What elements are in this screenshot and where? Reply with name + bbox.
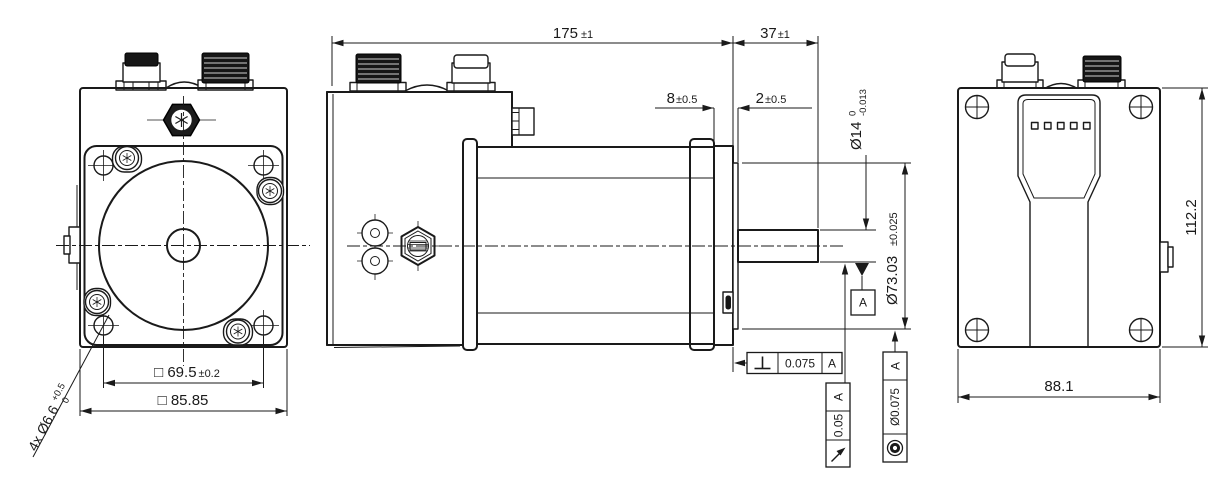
dim-flange-thickness: 8±0.5 [655, 90, 714, 146]
dim-flange-square-label: □ 85.85 [158, 392, 209, 409]
drawing-page: □ 69.5±0.2 □ 85.85 4x Ø6.6 +0.5 0 [0, 0, 1222, 480]
side-gasket-dome [405, 85, 449, 91]
vent-plug-icon [147, 104, 216, 135]
dim-bolt-square-label: □ 69.5±0.2 [154, 364, 220, 381]
svg-text:Ø73.03: Ø73.03 [884, 256, 901, 305]
rear-side-connector-tab [1160, 242, 1173, 272]
dim-shaft-length: 37±1 [733, 25, 818, 228]
gdt-perpendicularity-frame: 0.075 A [733, 347, 842, 374]
datum-triangle-icon [855, 263, 869, 276]
svg-text:0: 0 [848, 111, 859, 116]
dim-mounting-holes-label: 4x Ø6.6 +0.5 0 [24, 381, 77, 455]
side-ground-clip [723, 292, 733, 313]
side-connector-left-icon [350, 54, 406, 91]
dimension-drawing: □ 69.5±0.2 □ 85.85 4x Ø6.6 +0.5 0 [0, 0, 1222, 480]
gdt-conc-value: Ø0.075 [890, 388, 902, 426]
datum-label: A [859, 296, 867, 310]
rear-view: 112.2 88.1 [958, 54, 1208, 403]
datum-a-flag: A [851, 263, 875, 315]
dim-shaft-diameter: Ø14 0 -0.013 [820, 89, 876, 262]
side-housing-outline [327, 92, 512, 348]
dim-shaft-length-label: 37±1 [760, 25, 790, 42]
gdt-runout-value: 0.05 [832, 413, 846, 437]
dim-body-height-label: 112.2 [1183, 199, 1200, 235]
gdt-conc-datum: A [889, 362, 903, 370]
dim-body-height: 112.2 [1162, 88, 1208, 347]
rear-connector-right-icon [1078, 56, 1125, 89]
dim-body-width: 88.1 [958, 349, 1160, 403]
front-view: □ 69.5±0.2 □ 85.85 4x Ø6.6 +0.5 0 [24, 53, 310, 457]
dim-flange-thickness-label: 8±0.5 [667, 90, 698, 107]
dim-overall-length-label: 175±1 [553, 25, 593, 42]
rear-connector-left-icon [997, 54, 1043, 89]
svg-text:4x Ø6.6: 4x Ø6.6 [25, 402, 62, 453]
gdt-runout-datum: A [832, 393, 846, 401]
side-motor-body [463, 139, 714, 350]
rotary-switches-icon [357, 214, 393, 280]
dim-pilot-height-label: 2±0.5 [756, 90, 787, 107]
front-connector-left-icon [116, 53, 166, 90]
side-view: 175±1 37±1 8±0.5 2±0.5 [327, 25, 911, 467]
gdt-perp-datum: A [828, 357, 836, 371]
dim-pilot-height: 2±0.5 [738, 90, 812, 162]
side-connector-right-icon [447, 55, 495, 91]
svg-text:-0.013: -0.013 [858, 89, 869, 116]
side-flange-plate [714, 146, 733, 345]
front-side-connector-tab [64, 227, 80, 263]
rear-body-outline [958, 88, 1160, 347]
gdt-perp-value: 0.075 [785, 357, 815, 371]
gdt-concentricity-frame: A Ø0.075 [883, 331, 907, 463]
side-housing-port [512, 108, 534, 135]
dim-pilot-diameter-label: Ø73.03 ±0.025 [884, 212, 901, 305]
svg-text:±0.025: ±0.025 [888, 212, 900, 246]
front-connector-right-icon [198, 53, 253, 90]
dim-body-width-label: 88.1 [1044, 378, 1073, 395]
svg-text:Ø14: Ø14 [848, 122, 865, 150]
dim-shaft-diameter-label: Ø14 0 -0.013 [848, 89, 870, 150]
